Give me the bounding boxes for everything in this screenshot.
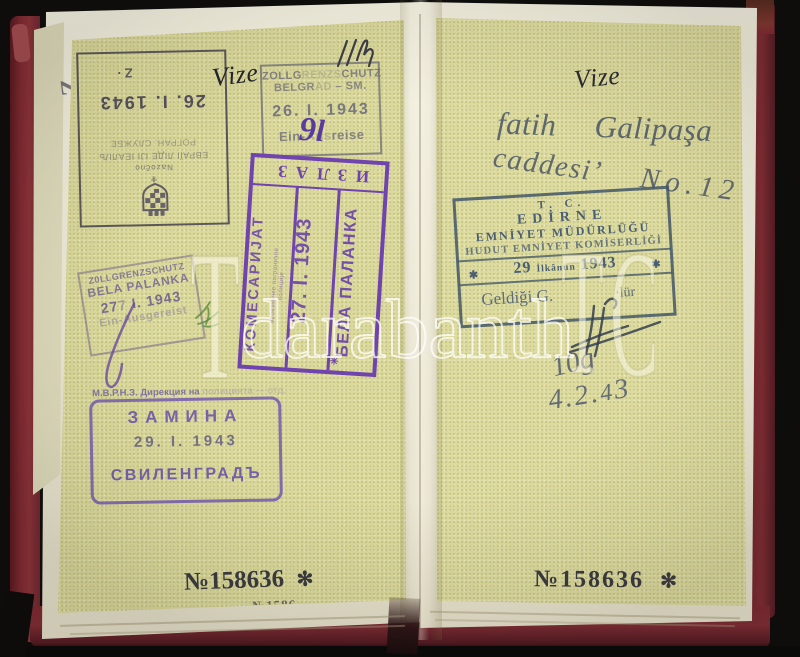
svg-text:T: T: [190, 214, 240, 420]
svg-text:darabanth: darabanth: [241, 283, 574, 376]
svg-text:C: C: [610, 212, 659, 414]
